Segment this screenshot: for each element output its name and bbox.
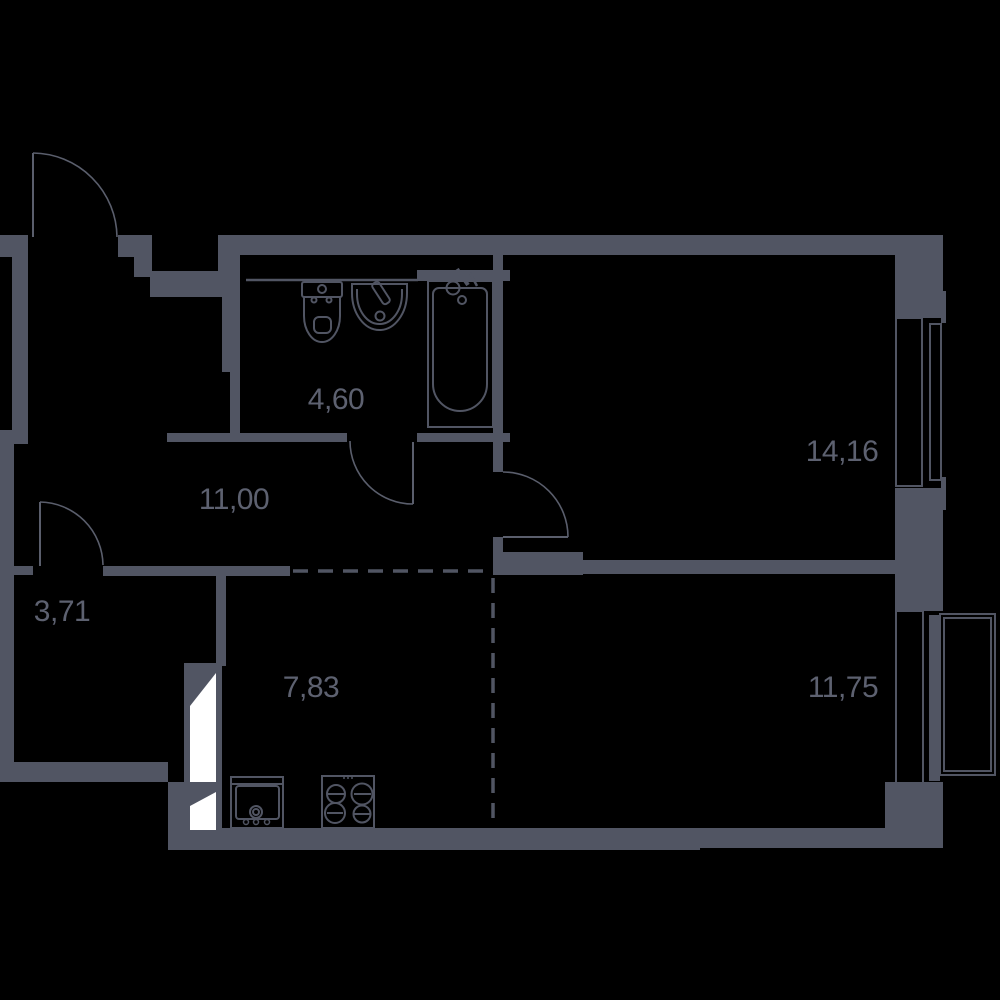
wall-segment bbox=[895, 255, 943, 318]
wall-segment bbox=[168, 782, 185, 832]
wall-segment bbox=[150, 271, 218, 297]
room-label-kitchen: 7,83 bbox=[283, 671, 339, 704]
wall-segment bbox=[222, 297, 240, 372]
wall-segment bbox=[230, 372, 240, 434]
wall-segment bbox=[240, 235, 943, 255]
wall-segment bbox=[493, 537, 503, 553]
room-label-bathroom: 4,60 bbox=[308, 383, 364, 416]
wall-segment bbox=[216, 566, 226, 666]
room-label-hallway: 11,00 bbox=[199, 483, 269, 516]
wall-segment bbox=[929, 615, 940, 781]
wall-segment bbox=[0, 566, 33, 575]
wall-segment bbox=[0, 430, 28, 444]
wall-segment bbox=[941, 291, 946, 323]
wall-segment bbox=[895, 488, 943, 611]
wall-segment bbox=[218, 235, 240, 297]
wall-segment bbox=[583, 560, 895, 574]
wall-segment bbox=[493, 255, 503, 472]
wall-segment bbox=[118, 235, 152, 257]
floor-plan: 4,60 11,00 3,71 7,83 14,16 11,75 bbox=[0, 0, 1000, 1000]
wall-segment bbox=[134, 255, 152, 277]
room-label-storage: 3,71 bbox=[34, 595, 90, 628]
wall-segment bbox=[0, 430, 14, 782]
room-label-living-room: 11,75 bbox=[808, 671, 878, 704]
wall-segment bbox=[493, 552, 583, 575]
wall-segment bbox=[167, 433, 347, 442]
wall-segment bbox=[0, 762, 168, 782]
wall-segment bbox=[103, 566, 290, 576]
wall-segment bbox=[168, 828, 700, 850]
wall-segment bbox=[12, 235, 28, 442]
room-label-bedroom: 14,16 bbox=[806, 435, 879, 468]
wall-segment bbox=[700, 828, 943, 848]
